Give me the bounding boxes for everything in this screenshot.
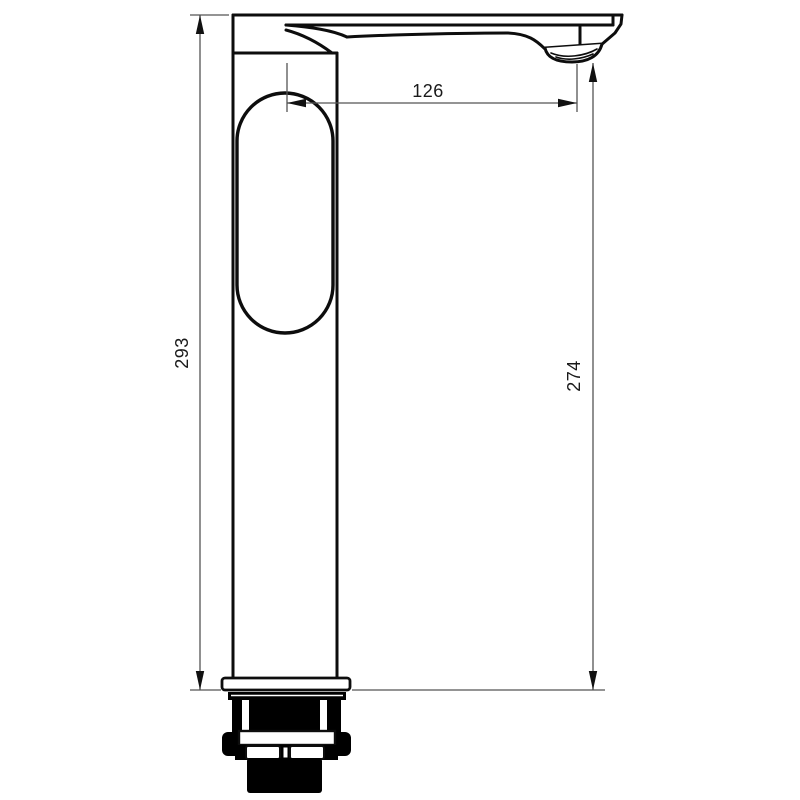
dimension-spout-reach: 126 [287,63,577,112]
mounting-body-block [232,700,341,733]
faucet-body-column [233,15,337,678]
dimension-overall-height: 293 [172,15,229,690]
base-gasket [228,692,346,700]
arrow-left-icon [287,99,306,107]
arrow-down-icon [589,671,597,690]
threaded-shank [247,758,322,793]
faucet-outline [222,15,622,793]
arrow-down-icon [196,671,204,690]
mounting-base [222,678,351,793]
arrow-up-icon [196,15,204,34]
base-flange [222,678,350,690]
arrow-up-icon [589,63,597,82]
threaded-section [235,745,338,760]
spout-underside [347,27,602,49]
spout-neck-curves [286,25,347,53]
dimension-label-spout-height: 274 [564,360,584,392]
dimension-label-overall-height: 293 [172,337,192,369]
arrow-right-icon [558,99,577,107]
body-oval-panel [237,93,333,333]
dimension-label-spout-reach: 126 [412,81,444,101]
faucet-dimension-drawing: 293 126 274 [0,0,800,800]
technical-drawing-canvas: 293 126 274 [0,0,800,800]
dimension-spout-height: 274 [352,63,605,690]
